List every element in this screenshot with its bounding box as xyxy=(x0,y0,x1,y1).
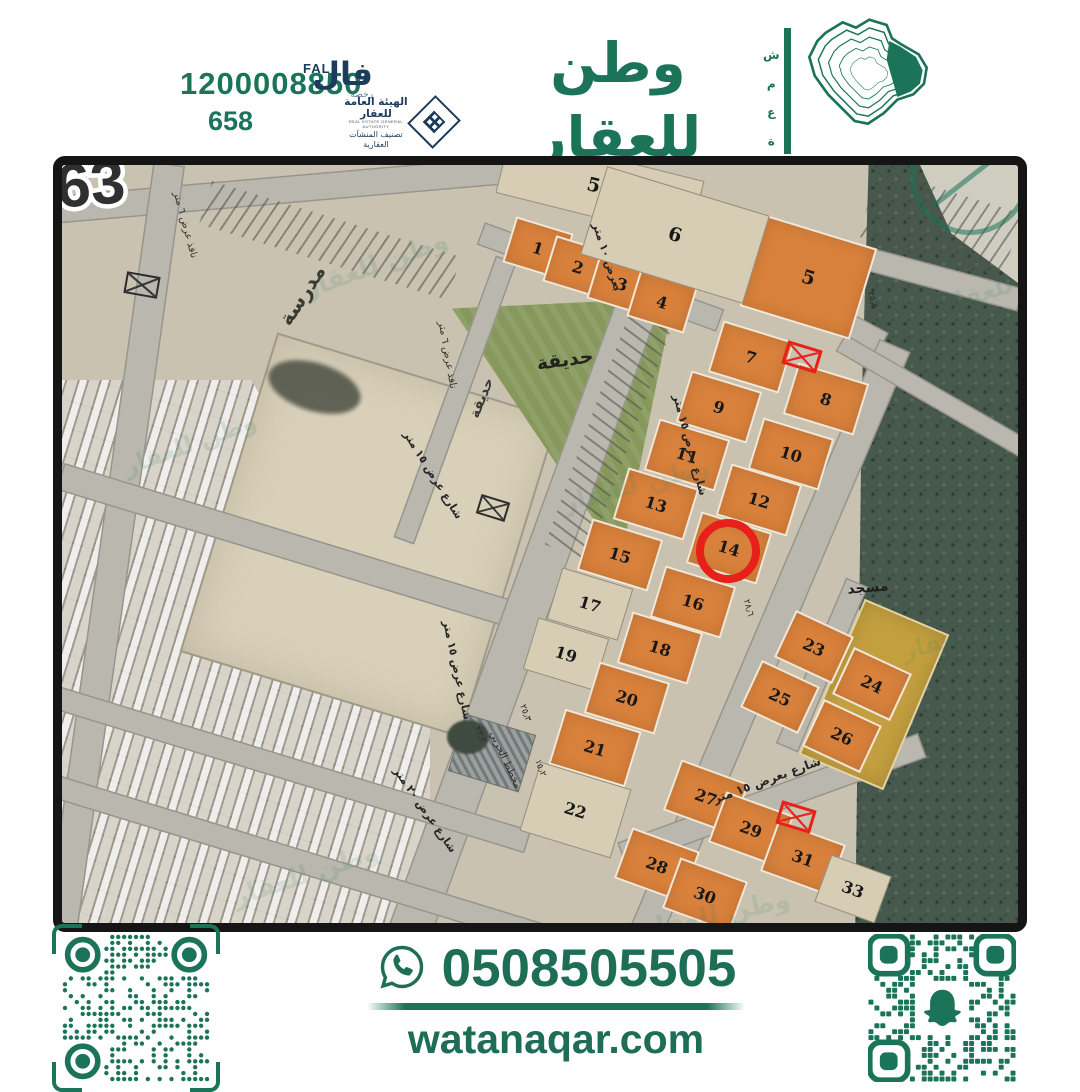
district-number: 63 xyxy=(53,156,128,223)
plot-number: 18 xyxy=(647,636,674,661)
plot-number: 4 xyxy=(654,291,670,312)
plot-number: 23 xyxy=(800,634,828,661)
map-label: ٢٥٫٣ xyxy=(517,703,532,723)
plot-number: 17 xyxy=(577,592,604,617)
divider-line xyxy=(367,1003,745,1010)
plot-number: 2 xyxy=(570,256,586,277)
qr-code-snapchat xyxy=(858,924,1026,1092)
authority-subtitle: تصنيف المنشآت العقارية xyxy=(342,130,410,148)
brand-divider-bar xyxy=(784,28,791,154)
license-number: 658 xyxy=(208,106,253,137)
brand-name-arabic: وطن للعقار xyxy=(468,26,768,175)
whatsapp-number: 0508505505 xyxy=(442,938,737,999)
map-label: ٢٨٫٦ xyxy=(741,598,755,617)
highlight-circle-plot-14 xyxy=(696,519,760,583)
brand-vertical-letter: ع xyxy=(763,105,780,119)
x-box-marker xyxy=(123,271,160,299)
brand-vertical-letter: ة xyxy=(763,134,780,148)
map-label: ١٥٫٢ xyxy=(532,758,547,778)
qr-right-svg xyxy=(868,934,1016,1082)
plot-number: 16 xyxy=(680,590,707,615)
plot-number: 20 xyxy=(614,686,641,711)
authority-text: الهيئة العامة للعقار REAL ESTATE GENERAL… xyxy=(342,96,410,149)
plot-number: 10 xyxy=(778,442,805,467)
plot-number: 19 xyxy=(553,642,580,667)
map-image: 1234558678910111213141516171819202122232… xyxy=(53,156,1027,932)
authority-name: الهيئة العامة للعقار xyxy=(342,96,410,120)
plot-number: 7 xyxy=(743,346,759,367)
whatsapp-icon xyxy=(376,941,428,997)
plot-number: 9 xyxy=(711,396,727,417)
fal-license-logo: FAL فال رخصة xyxy=(303,58,373,100)
qr-left-svg xyxy=(62,934,210,1082)
brand-vertical-letter: ش xyxy=(763,48,780,62)
plot-number: 6 xyxy=(665,223,684,248)
plot-number: 12 xyxy=(746,488,773,513)
brand-vertical-letter: م xyxy=(763,77,780,91)
brand-vertical-text: شمعة xyxy=(763,48,780,148)
qr-code-website xyxy=(52,924,220,1092)
authority-name-en: REAL ESTATE GENERAL AUTHORITY xyxy=(342,120,410,129)
fal-latin-label: FAL xyxy=(303,62,331,75)
plot-8: 8 xyxy=(783,362,870,435)
plot-number: 29 xyxy=(737,816,764,841)
plot-number: 15 xyxy=(607,543,634,568)
plot-number: 31 xyxy=(789,845,816,870)
contact-block: 0508505505 watanaqar.com xyxy=(306,938,806,1063)
plot-number: 8 xyxy=(818,388,834,409)
plot-number: 33 xyxy=(839,876,866,901)
plot-number: 22 xyxy=(562,798,589,823)
authority-diamond-icon xyxy=(407,95,461,149)
plot-number: 21 xyxy=(582,736,609,761)
plot-number: 1 xyxy=(530,237,546,258)
plot-number: 24 xyxy=(858,671,886,698)
flyer: 1200008850 658 FAL فال رخصة الهيئة العام… xyxy=(0,0,1080,1080)
plot-number: 28 xyxy=(643,852,670,877)
website-url: watanaqar.com xyxy=(306,1016,806,1063)
saudi-arabia-map-icon xyxy=(796,12,956,154)
header: 1200008850 658 FAL فال رخصة الهيئة العام… xyxy=(0,0,1080,158)
plot-number: 25 xyxy=(766,684,794,711)
plot-number: 5 xyxy=(798,265,817,290)
real-estate-authority-logo: الهيئة العامة للعقار REAL ESTATE GENERAL… xyxy=(342,96,452,149)
red-x-marker xyxy=(781,340,822,373)
footer: 0508505505 watanaqar.com xyxy=(0,932,1080,1080)
plot-number: 26 xyxy=(828,723,856,750)
snapchat-ghost-icon xyxy=(924,990,961,1026)
map-label: نافذ عرض ٦ متر xyxy=(436,320,459,389)
